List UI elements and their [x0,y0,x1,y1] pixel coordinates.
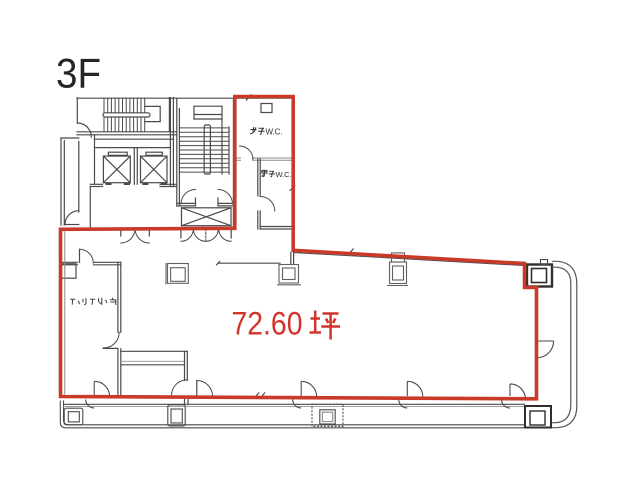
svg-text:W.C.: W.C. [266,127,283,136]
svg-text:W.C.: W.C. [276,170,292,179]
svg-text:3F: 3F [56,50,101,97]
svg-text:72.60: 72.60 [232,306,303,342]
